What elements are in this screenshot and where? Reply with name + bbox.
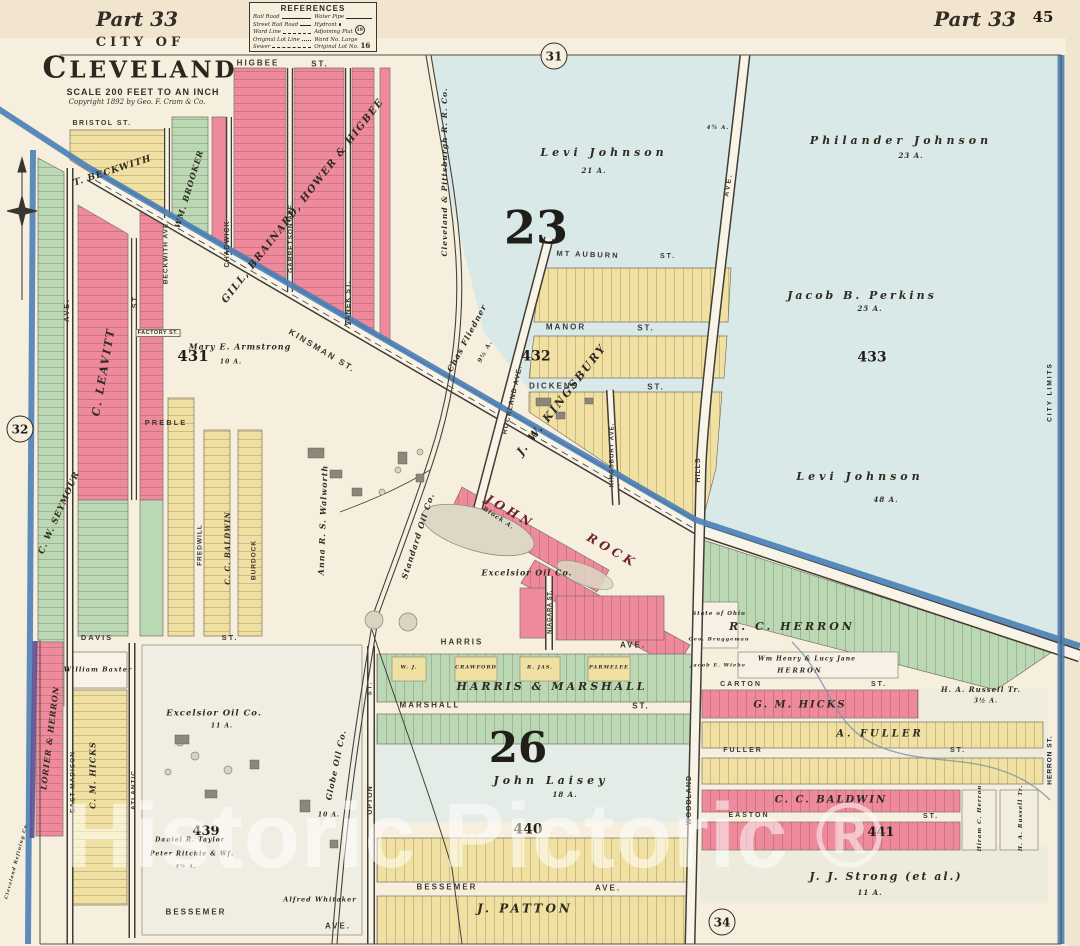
street-bessemer-left: BESSEMER [166,909,227,918]
street-carton: CARTON [720,681,762,689]
street-hills: HILLS [695,457,703,482]
street-marshall-st: ST. [632,703,650,712]
owner-jacob-wiebe: Jacob E. Wiebe [690,663,746,669]
owner-jacob-perkins: Jacob B. Perkins [787,290,937,302]
owner-r-jas: R. JAS. [527,665,553,671]
owner-harris-marshall: HARRIS & MARSHALL [456,681,647,693]
street-preble: PREBLE [145,419,187,427]
part-label-right: Part 33 [934,8,1016,30]
title-scale: SCALE 200 FEET TO AN INCH [66,87,219,97]
street-factory: FACTORY ST. [136,329,181,337]
acres-perkins: 25 A. [857,305,882,313]
street-beckwith-ave: BECKWITH AVE. [162,220,169,284]
owner-excelsior-oil-sw: Excelsior Oil Co. [166,709,262,718]
street-upton: UPTON [367,785,375,814]
acres-mary-armstrong: 10 A. [220,360,242,367]
street-bessemer-mid: BESSEMER [417,884,478,893]
owner-wm-henry-lucy: Wm Henry & Lucy Jane [758,657,856,664]
block-niagara-west [520,588,546,638]
part-label-left: Part 33 [96,8,178,30]
owner-william-baxter: William Baxter [64,666,133,673]
street-mt-auburn-st: ST. [660,253,676,261]
legend-water-pipe: Water Pipe [314,13,373,20]
title-city-of: CITY OF [96,36,184,50]
acres-globe: 10 A. [318,813,340,820]
block-number-432: 432 [521,349,550,364]
owner-alfred-whitaker: Alfred Whitaker [283,896,356,903]
owner-a-fuller: A. FULLER [836,729,924,740]
block-number-441: 441 [867,826,894,840]
street-marshall: MARSHALL [400,702,461,711]
owner-mary-armstrong: Mary E. Armstrong [189,343,291,352]
adjoining-plate-34: 34 [709,909,736,936]
ward-boundary-purple [32,641,35,838]
owner-gm-hicks: G. M. HICKS [753,700,846,711]
street-woodland: WOODLAND [686,775,694,825]
street-carton-st: ST. [871,681,887,689]
street-atlantic: ATLANTIC [130,770,137,810]
owner-john-laisey: John Laisey [494,775,609,787]
owner-cc-baldwin-column: C. C. BALDWIN [224,511,232,585]
ward-number-26: 26 [489,725,547,771]
street-fuller: FULLER [723,747,763,755]
street-manor: MANOR [546,324,586,333]
acres-levi-north: 21 A. [581,167,606,175]
acres-jj-strong: 11 A. [857,889,882,897]
references-title: REFERENCES [253,4,373,13]
street-bristol: BRISTOL ST. [72,120,131,128]
adjoining-plate-32: 32 [7,416,34,443]
label-state-of-ohio: State of Ohio [692,611,746,617]
block-col2-green [140,500,163,636]
owner-cm-hicks: C. M. HICKS [89,741,98,809]
owner-hiram-herron: Hiram C. Herron [977,785,983,852]
street-easton: EASTON [728,812,769,820]
owner-crawford: CRAWFORD [455,665,497,671]
street-fredwill: FREDWILL [196,524,203,566]
street-chadwick: CHADWICK [224,221,232,268]
owner-jj-strong: J. J. Strong (et al.) [809,871,962,883]
owner-j-patton: J. PATTON [477,902,573,915]
street-harris: HARRIS [441,639,484,648]
references-legend: REFERENCES Rail Road Street Rail Road Wa… [249,2,377,52]
acres-levi-south: 48 A. [873,496,898,504]
adjoining-plat-circle-icon: 19 [355,25,365,35]
owner-herron-name: HERRON [777,667,823,674]
legend-adjoining-plat: Adjoining Plat19 [314,28,373,35]
owner-daniel-taylor: Daniel R. Taylor [155,838,225,845]
acres-excelsior-sw: 11 A. [211,724,233,731]
owner-parmelee: PARMELEE [589,665,629,671]
owner-excelsior-oil-mid: Excelsior Oil Co. [482,569,573,578]
street-easton-st: ST. [923,813,939,821]
owner-wj: W. J. [400,665,417,671]
street-niagara: NIAGARA ST. [548,590,555,634]
street-bessemer-left-ave: AVE. [325,923,351,932]
street-manor-st: ST. [637,325,655,334]
owner-levi-johnson-north: Levi Johnson [540,147,667,159]
atlas-page: { "header": { "part_left": "Part 33", "c… [0,0,1080,946]
owner-bruggeman: Geo. Bruggeman [688,637,749,643]
legend-ward-line: Ward Line [253,28,312,35]
legend-original-lot-no: Original Lot No.16 [314,43,373,50]
legend-sewer: Sewer [253,43,312,50]
street-higbee: HIGBEE [237,60,280,69]
street-kingsbury-ave: KINGSBURY AVE. [610,423,617,488]
owner-cleveland-pittsburgh-rr: Cleveland & Pittsburgh R. R. Co. [441,87,449,256]
acres-russell-north: 3½ A. [974,699,998,706]
label-city-limits: CITY LIMITS [1046,362,1053,422]
street-dickens-st: ST. [647,384,665,393]
owner-russell-column: H. A. Russell Tr. [1018,785,1024,851]
owner-rc-herron: R. C. HERRON [729,621,855,633]
street-upton-st: ST. [368,681,375,696]
acres-ritchie: 4¾ A. [175,864,196,870]
title-cleveland: CLEVELAND [43,52,238,85]
street-davis: DAVIS [81,634,113,642]
street-ave-left: AVE. [64,298,72,322]
title-copyright: Copyright 1892 by Geo. F. Cram & Co. [69,98,206,106]
acres-small-ne: 4¾ A. [707,125,730,131]
owner-cc-baldwin-south: C. C. BALDWIN [775,795,887,806]
block-number-440: 440 [513,822,542,837]
street-davis-st: ST. [222,634,239,642]
legend-street-rail-road: Street Rail Road [253,20,312,27]
hydrant-icon [339,23,342,26]
page-number: 45 [1033,9,1054,26]
street-herron: HERRON ST. [1046,735,1053,784]
street-fuller-st: ST. [950,747,966,755]
legend-original-lot-line: Original Lot Line [253,35,312,42]
block-higbee-d [380,68,390,350]
owner-philander-johnson: Philander Johnson [810,135,992,147]
street-higbee-st: ST. [311,61,329,70]
owner-russell-north: H. A. Russell Tr. [941,686,1021,694]
street-harris-ave: AVE. [620,642,646,651]
street-bessemer-mid-ave: AVE. [595,885,621,894]
street-burdock: BURDOCK [250,540,257,580]
owner-levi-johnson-south: Levi Johnson [796,471,923,483]
street-st-left: ST. [132,292,140,308]
acres-laisey: 18 A. [552,791,577,799]
acres-philander: 23 A. [898,152,923,160]
street-east-madison: EAST MADISON [69,751,76,813]
owner-peter-ritchie: Peter Ritchie & Wf. [150,852,234,859]
block-number-433: 433 [857,350,886,365]
legend-rail-road: Rail Road [253,13,312,20]
adjoining-plate-31: 31 [541,43,568,70]
ward-number-23: 23 [504,203,568,254]
street-vanek: VANEK ST. [345,280,353,325]
